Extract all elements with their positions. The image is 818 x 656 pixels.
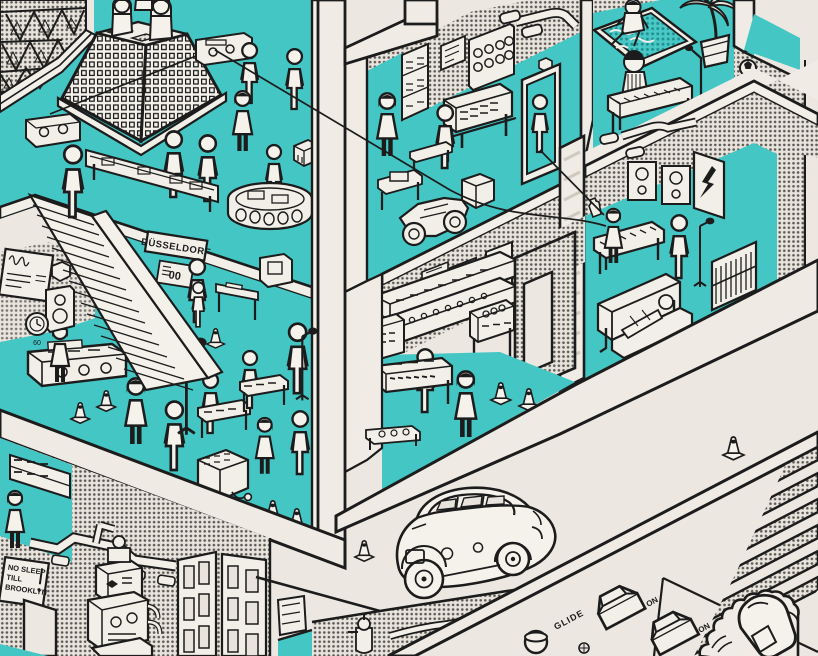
svg-text:60: 60 [33, 340, 41, 347]
